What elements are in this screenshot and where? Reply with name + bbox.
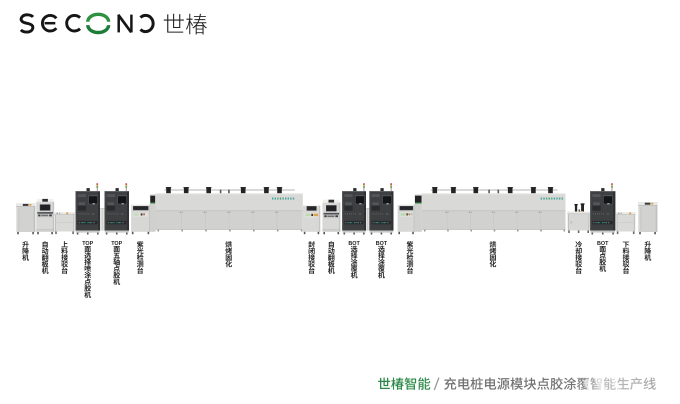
svg-text:BOT: BOT [597, 241, 609, 247]
svg-text:TOP: TOP [82, 241, 93, 247]
svg-text:TOP: TOP [111, 241, 122, 247]
svg-text:BOT: BOT [348, 241, 360, 247]
svg-text:BOT: BOT [376, 241, 388, 247]
